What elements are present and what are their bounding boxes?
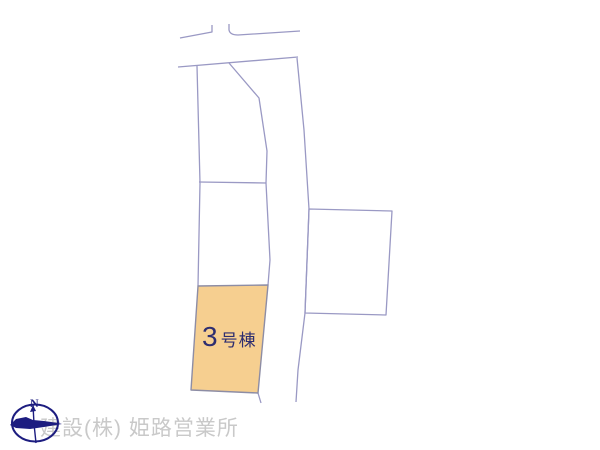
parcel-3-label: 3 号棟	[202, 323, 257, 351]
parcel-map-drawing	[0, 0, 600, 450]
road-east-edge-line	[296, 58, 309, 402]
parcel-3-suffix: 号棟	[221, 332, 257, 349]
company-watermark-text: 建設(株) 姫路営業所	[40, 412, 239, 442]
road-edge-upper-right-line	[229, 24, 300, 35]
compass-icon: N	[8, 396, 64, 450]
site-plan-map: 3 号棟 建設(株) 姫路営業所 N	[0, 0, 600, 450]
road-west-edge-stub-line	[258, 393, 261, 403]
road-west-edge-line	[229, 63, 270, 285]
parcel-divider-line	[199, 182, 266, 183]
road-edge-upper-left-line	[180, 25, 212, 38]
block-west-boundary-line	[197, 66, 200, 286]
compass-north-label: N	[30, 396, 39, 410]
east-parcel-outline	[305, 209, 392, 315]
block-north-boundary-line	[178, 57, 298, 67]
parcel-3-number: 3	[202, 323, 219, 351]
